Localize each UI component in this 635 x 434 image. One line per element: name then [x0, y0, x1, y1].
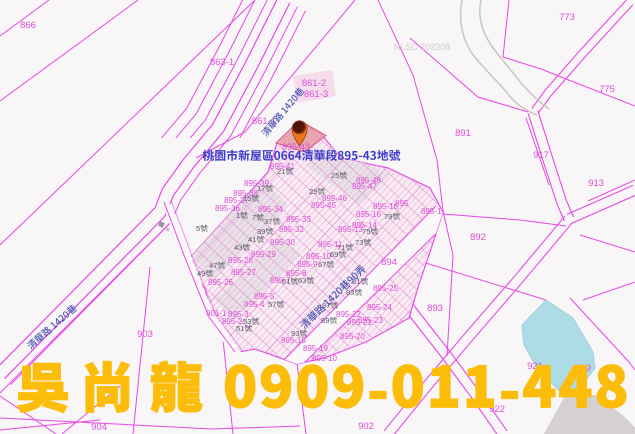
svg-text:75: 75	[362, 227, 370, 236]
svg-text:895-20: 895-20	[340, 332, 365, 341]
svg-text:29: 29	[309, 187, 317, 196]
svg-text:895-47: 895-47	[352, 182, 377, 191]
svg-text:895-19: 895-19	[303, 344, 328, 353]
svg-text:89: 89	[321, 316, 329, 325]
svg-text:913: 913	[588, 178, 604, 189]
svg-text:775: 775	[599, 84, 615, 95]
svg-text:904: 904	[91, 422, 107, 433]
svg-text:21: 21	[277, 167, 285, 176]
svg-text:25: 25	[331, 171, 339, 180]
svg-text:83: 83	[346, 288, 354, 297]
svg-text:895-29: 895-29	[251, 250, 276, 259]
svg-text:895-10: 895-10	[312, 354, 337, 363]
svg-text:895-33: 895-33	[286, 215, 311, 224]
svg-text:895-34: 895-34	[258, 205, 283, 214]
svg-text:895-45: 895-45	[311, 201, 336, 210]
svg-text:895: 895	[395, 199, 409, 208]
svg-text:895-1: 895-1	[421, 207, 442, 216]
svg-text:51: 51	[236, 324, 244, 333]
svg-text:893: 893	[427, 303, 443, 314]
svg-text:5: 5	[196, 224, 200, 233]
svg-text:895-43: 895-43	[282, 142, 310, 152]
svg-text:861-3: 861-3	[304, 89, 328, 100]
svg-text:895-16: 895-16	[356, 210, 381, 219]
svg-text:17: 17	[257, 184, 265, 193]
svg-text:63: 63	[298, 276, 306, 285]
svg-text:863-1: 863-1	[210, 57, 234, 68]
svg-text:891: 891	[455, 128, 471, 139]
svg-text:69: 69	[330, 250, 338, 259]
svg-text:73: 73	[355, 238, 363, 247]
svg-text:1: 1	[236, 211, 240, 220]
svg-text:894: 894	[381, 257, 397, 268]
svg-text:895-28: 895-28	[228, 256, 253, 265]
svg-text:903: 903	[137, 329, 153, 340]
svg-text:902: 902	[358, 421, 374, 432]
svg-text:39: 39	[257, 227, 265, 236]
svg-text:NLSC 202308: NLSC 202308	[394, 42, 451, 52]
svg-text:37: 37	[264, 217, 272, 226]
svg-text:901-1: 901-1	[206, 309, 227, 318]
svg-text:7: 7	[252, 213, 256, 222]
svg-text:61: 61	[282, 277, 290, 286]
svg-text:773: 773	[559, 12, 575, 23]
svg-text:895-32: 895-32	[279, 225, 304, 234]
svg-text:917: 917	[533, 150, 549, 161]
svg-text:49: 49	[197, 269, 205, 278]
svg-text:895-24: 895-24	[367, 303, 392, 312]
svg-text:57: 57	[268, 300, 276, 309]
svg-text:861-2: 861-2	[302, 78, 326, 89]
svg-text:67: 67	[318, 260, 326, 269]
svg-text:895-27: 895-27	[231, 268, 256, 277]
svg-text:895-9: 895-9	[297, 260, 318, 269]
svg-text:866: 866	[20, 20, 36, 31]
svg-text:79: 79	[384, 212, 392, 221]
svg-text:15: 15	[243, 194, 251, 203]
svg-text:895-4: 895-4	[244, 300, 265, 309]
svg-text:43: 43	[234, 243, 242, 252]
svg-text:895-21: 895-21	[347, 318, 372, 327]
svg-text:47: 47	[209, 261, 217, 270]
svg-text:93: 93	[291, 329, 299, 338]
svg-text:895-25: 895-25	[373, 284, 398, 293]
svg-text:892: 892	[470, 232, 486, 243]
svg-text:41: 41	[248, 235, 256, 244]
svg-text:895-30: 895-30	[270, 238, 295, 247]
svg-text:895-26: 895-26	[208, 278, 233, 287]
